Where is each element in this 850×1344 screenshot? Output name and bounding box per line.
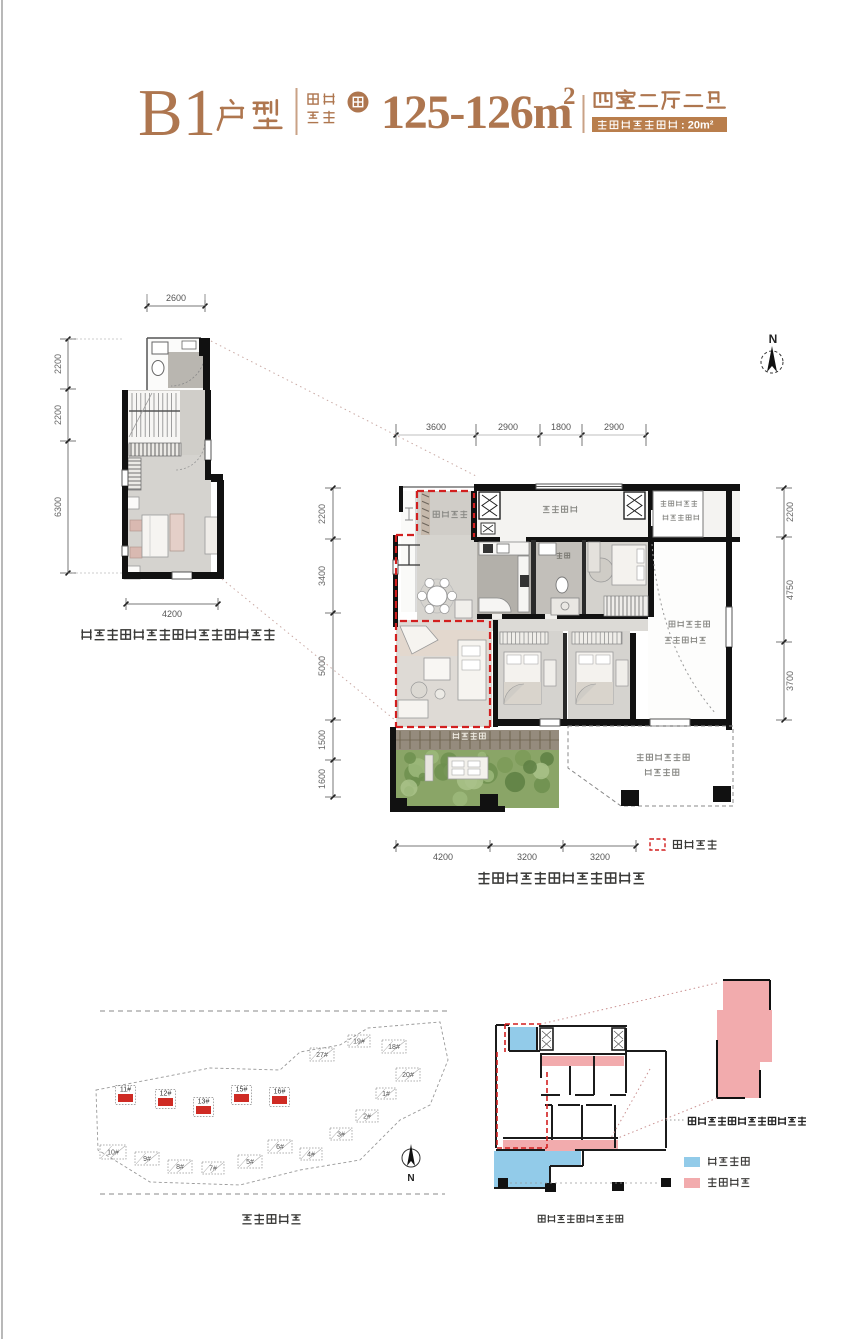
svg-text:2: 2: [563, 83, 576, 110]
svg-text:3#: 3#: [337, 1132, 345, 1139]
svg-text:5#: 5#: [246, 1159, 254, 1166]
svg-text:27#: 27#: [316, 1052, 328, 1059]
svg-text:15#: 15#: [236, 1087, 248, 1094]
svg-text:19#: 19#: [353, 1039, 365, 1046]
svg-text:3200: 3200: [590, 852, 610, 862]
svg-text:3700: 3700: [785, 671, 795, 691]
svg-text:8#: 8#: [176, 1164, 184, 1171]
svg-text:2900: 2900: [498, 422, 518, 432]
svg-text:6#: 6#: [276, 1144, 284, 1151]
svg-text:125-126m: 125-126m: [381, 86, 573, 139]
svg-text:3600: 3600: [426, 422, 446, 432]
svg-text:2200: 2200: [317, 504, 327, 524]
svg-text:12#: 12#: [160, 1091, 172, 1098]
svg-text:7#: 7#: [209, 1166, 217, 1173]
svg-text:2900: 2900: [604, 422, 624, 432]
svg-text:1500: 1500: [317, 730, 327, 750]
svg-text:18#: 18#: [388, 1044, 400, 1051]
svg-text:4#: 4#: [307, 1152, 315, 1159]
svg-text:2200: 2200: [785, 502, 795, 522]
svg-text:N: N: [769, 332, 778, 346]
svg-text:2#: 2#: [363, 1114, 371, 1121]
svg-text:N: N: [407, 1173, 414, 1184]
svg-text:20#: 20#: [402, 1072, 414, 1079]
svg-text:10#: 10#: [107, 1150, 119, 1157]
svg-text:B1: B1: [138, 76, 216, 150]
svg-text:2200: 2200: [53, 354, 63, 374]
svg-text:1800: 1800: [551, 422, 571, 432]
svg-text:13#: 13#: [198, 1099, 210, 1106]
svg-text:1#: 1#: [382, 1091, 390, 1098]
svg-text:3400: 3400: [317, 566, 327, 586]
svg-text:6300: 6300: [53, 497, 63, 517]
svg-text:16#: 16#: [274, 1089, 286, 1096]
svg-text:9#: 9#: [143, 1156, 151, 1163]
svg-text:2200: 2200: [53, 405, 63, 425]
svg-text:11#: 11#: [120, 1087, 131, 1094]
svg-text:4750: 4750: [785, 580, 795, 600]
svg-text:2600: 2600: [166, 293, 186, 303]
svg-text:4200: 4200: [162, 609, 182, 619]
svg-text:: 20m²: : 20m²: [681, 120, 714, 132]
svg-text:5000: 5000: [317, 656, 327, 676]
svg-text:1600: 1600: [317, 769, 327, 789]
svg-text:3200: 3200: [517, 852, 537, 862]
svg-text:4200: 4200: [433, 852, 453, 862]
